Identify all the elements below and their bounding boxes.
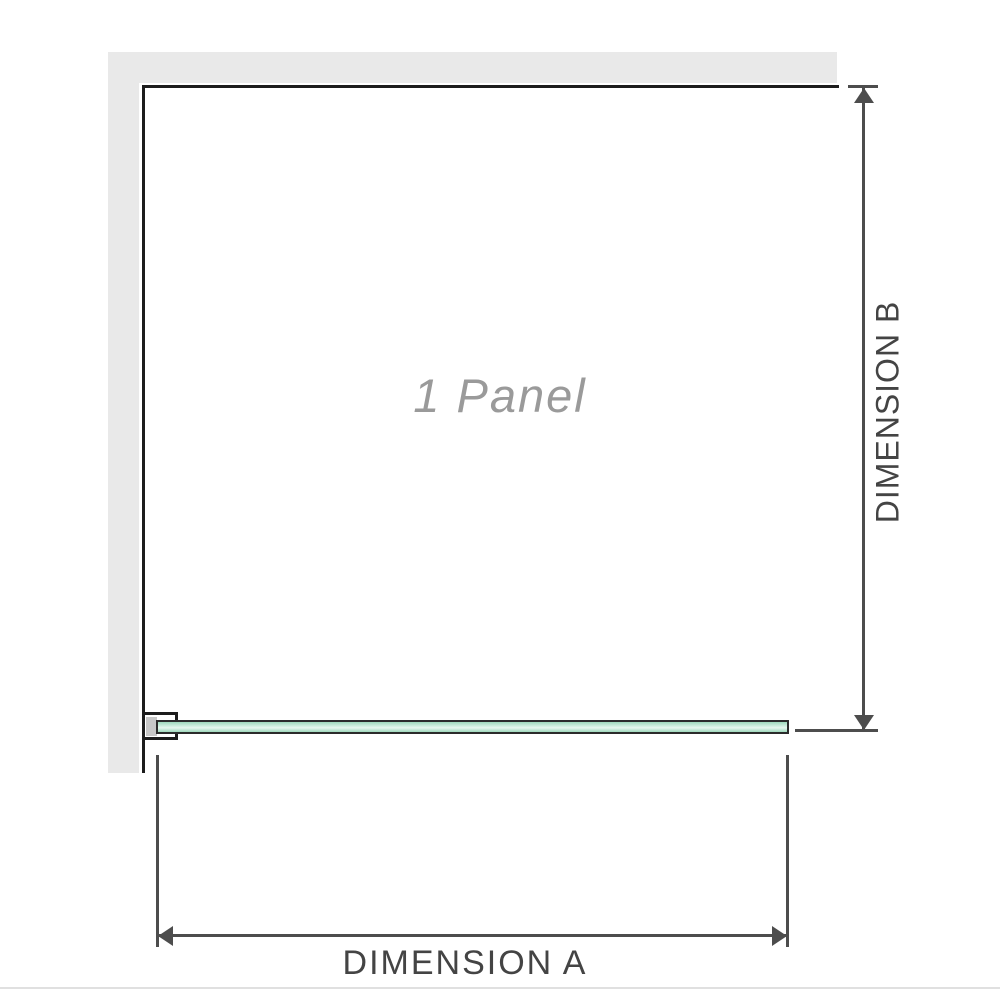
dimension-b-line [862,88,865,730]
panel-area-left-edge [142,85,145,773]
page-separator [0,987,1000,989]
glass-panel [156,720,789,734]
arrowhead-right-icon [772,926,787,946]
dimension-a-left-extension [156,755,159,947]
panel-area-top-edge [142,85,839,88]
wall-left-segment [108,52,139,773]
panel-label: 1 Panel [300,368,700,423]
shower-panel-dimension-diagram: 1 Panel DIMENSION B DIMENSION A [0,0,1000,1000]
arrowhead-up-icon [854,88,874,103]
wall-top-segment [108,52,837,83]
dimension-a-right-extension [786,755,789,947]
dimension-b-label: DIMENSION B [870,301,907,524]
arrowhead-down-icon [854,715,874,730]
dimension-a-line [159,934,787,937]
arrowhead-left-icon [158,926,173,946]
dimension-a-label: DIMENSION A [265,944,665,983]
